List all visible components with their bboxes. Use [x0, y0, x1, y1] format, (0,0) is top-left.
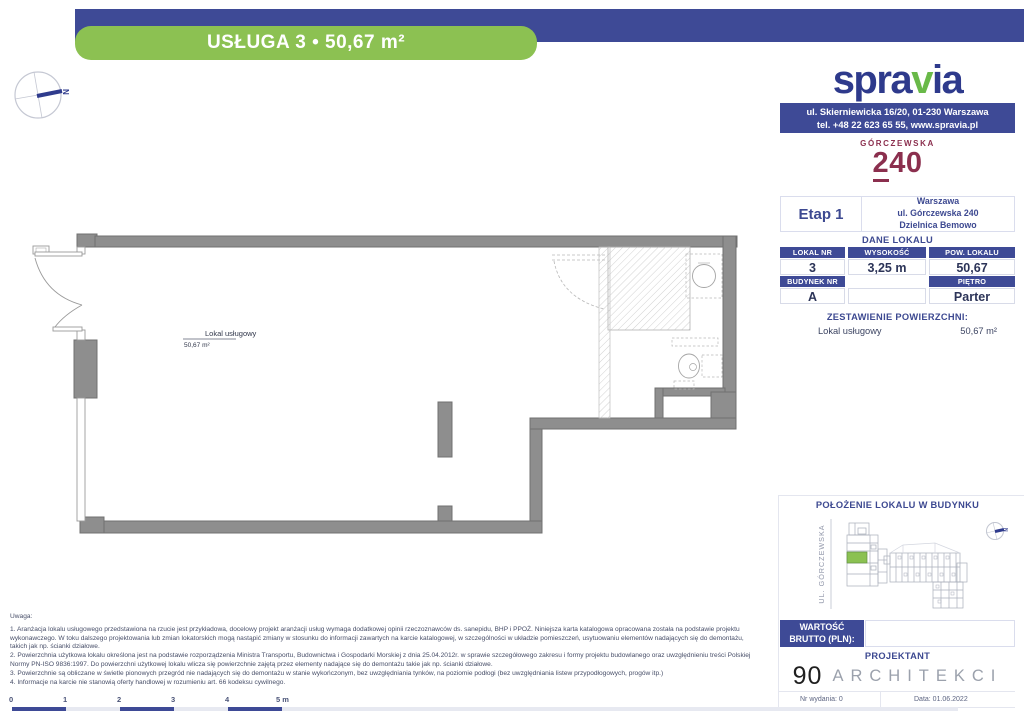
entrance-door [33, 246, 82, 331]
room-area-label: 50,67 m² [184, 342, 210, 349]
notes-line: takich jak np. ścianki działowe. [10, 643, 772, 652]
location-title: POŁOŻENIE LOKALU W BUDYNKU [780, 500, 1015, 510]
issue-info-row: Nr wydania: 0 Data: 01.06.2022 [779, 691, 1015, 708]
value-wysokosc: 3,25 m [848, 259, 926, 275]
project-city: Warszawa [917, 196, 959, 208]
scale-tick-label: 4 [225, 695, 229, 704]
area-summary-row: Lokal usługowy 50,67 m² [780, 326, 1015, 340]
bathroom-door [552, 255, 606, 309]
notes-line: Normy PN-ISO 9836:1997. Do powierzchni u… [10, 661, 772, 670]
compass-icon: N [15, 72, 70, 118]
project-location: Warszawa ul. Górczewska 240 Dzielnica Be… [862, 197, 1014, 231]
scale-tick-label: 5 m [276, 695, 289, 704]
header-wysokosc: WYSOKOŚĆ [848, 247, 926, 258]
scale-tick-label: 2 [117, 695, 121, 704]
unit-banner: USŁUGA 3 • 50,67 m² [75, 26, 537, 60]
spravia-logo: spravia [780, 54, 1015, 100]
table-header-row: LOKAL NR WYSOKOŚĆ POW. LOKALU [780, 247, 1015, 258]
notes-line: Uwaga: [10, 613, 772, 622]
washbasin-icon [693, 265, 716, 288]
header-pietro: PIĘTRO [929, 276, 1015, 287]
table-value-row: A Parter [780, 288, 1015, 304]
scale-bar-segment [228, 707, 282, 711]
room-label: Lokal usługowy 50,67 m² [183, 329, 257, 349]
logo-text: ia [932, 60, 962, 100]
architect-logo: 90 ARCHITEKCI [780, 663, 1015, 689]
building-location-plan: UL. GÓRCZEWSKA [817, 519, 1008, 609]
logo-text: spra [833, 60, 912, 100]
table-header-row: BUDYNEK NR PIĘTRO [780, 276, 1015, 287]
stage-label: Etap 1 [781, 197, 862, 231]
value-pietro: Parter [929, 288, 1015, 304]
address-line: ul. Skierniewicka 16/20, 01-230 Warszawa [780, 106, 1015, 119]
notes-line: 1. Aranżacja lokalu usługowego przedstaw… [10, 626, 772, 635]
logo-text-accent: v [911, 60, 932, 100]
scale-bar-segment [12, 707, 66, 711]
scale-tick-label: 3 [171, 695, 175, 704]
catalog-card-page: N [0, 0, 1024, 724]
architect-logo-text: ARCHITEKCI [832, 667, 1002, 686]
svg-text:Lokal usługowy: Lokal usługowy [205, 329, 257, 338]
notes-line: 4. Informacje na karcie nie stanowią ofe… [10, 679, 772, 688]
value-pow-lokalu: 50,67 [929, 259, 1015, 275]
mini-compass-north-label: N [1002, 528, 1008, 532]
project-district: Dzielnica Bemowo [899, 220, 976, 232]
table-value-row: 3 3,25 m 50,67 [780, 259, 1015, 275]
gross-price-value [865, 620, 1015, 647]
area-row-value: 50,67 m² [960, 326, 997, 340]
stage-box: Etap 1 Warszawa ul. Górczewska 240 Dziel… [780, 196, 1015, 232]
issue-number: Nr wydania: 0 [779, 692, 881, 707]
value-budynek-nr: A [780, 288, 845, 304]
header-budynek-nr: BUDYNEK NR [780, 276, 845, 287]
gorczewska-240-logo: GÓRCZEWSKA 240 [780, 139, 1015, 178]
unit-table-title: DANE LOKALU [780, 235, 1015, 245]
notes-line: wykonawczego. W toku dalszego projektowa… [10, 635, 772, 644]
street-label: UL. GÓRCZEWSKA [817, 524, 826, 603]
designer-title: PROJEKTANT [780, 651, 1015, 661]
issue-date: Data: 01.06.2022 [881, 692, 1015, 707]
value-spacer [848, 288, 926, 304]
panel-divider [778, 495, 1024, 496]
company-address-box: ul. Skierniewicka 16/20, 01-230 Warszawa… [780, 103, 1015, 133]
area-summary-title: ZESTAWIENIE POWIERZCHNI: [780, 312, 1015, 322]
unit-data-table: LOKAL NR WYSOKOŚĆ POW. LOKALU 3 3,25 m 5… [780, 247, 1015, 304]
legal-notes: Uwaga: 1. Aranżacja lokalu usługowego pr… [10, 613, 772, 687]
header-lokal-nr: LOKAL NR [780, 247, 845, 258]
project-street: ul. Górczewska 240 [897, 208, 978, 220]
panel-divider [778, 495, 779, 711]
compass-north-label: N [61, 89, 70, 95]
highlighted-unit [847, 552, 867, 563]
scale-tick-label: 1 [63, 695, 67, 704]
notes-line: 2. Powierzchnia użytkowa lokalu określon… [10, 652, 772, 661]
notes-line: 3. Powierzchnie są obliczane w świetle p… [10, 670, 772, 679]
mini-compass-icon: N [986, 522, 1008, 540]
header-pow-lokalu: POW. LOKALU [929, 247, 1015, 258]
architect-logo-number: 90 [793, 662, 823, 691]
area-row-name: Lokal usługowy [818, 326, 882, 340]
gross-price-label: WARTOŚĆ BRUTTO (PLN): [780, 620, 864, 647]
scale-tick-label: 0 [9, 695, 13, 704]
project-logo-number: 240 [780, 148, 1015, 178]
scale-bar-segment [120, 707, 174, 711]
address-line: tel. +48 22 623 65 55, www.spravia.pl [780, 119, 1015, 132]
value-lokal-nr: 3 [780, 259, 845, 275]
header-spacer [848, 276, 926, 287]
